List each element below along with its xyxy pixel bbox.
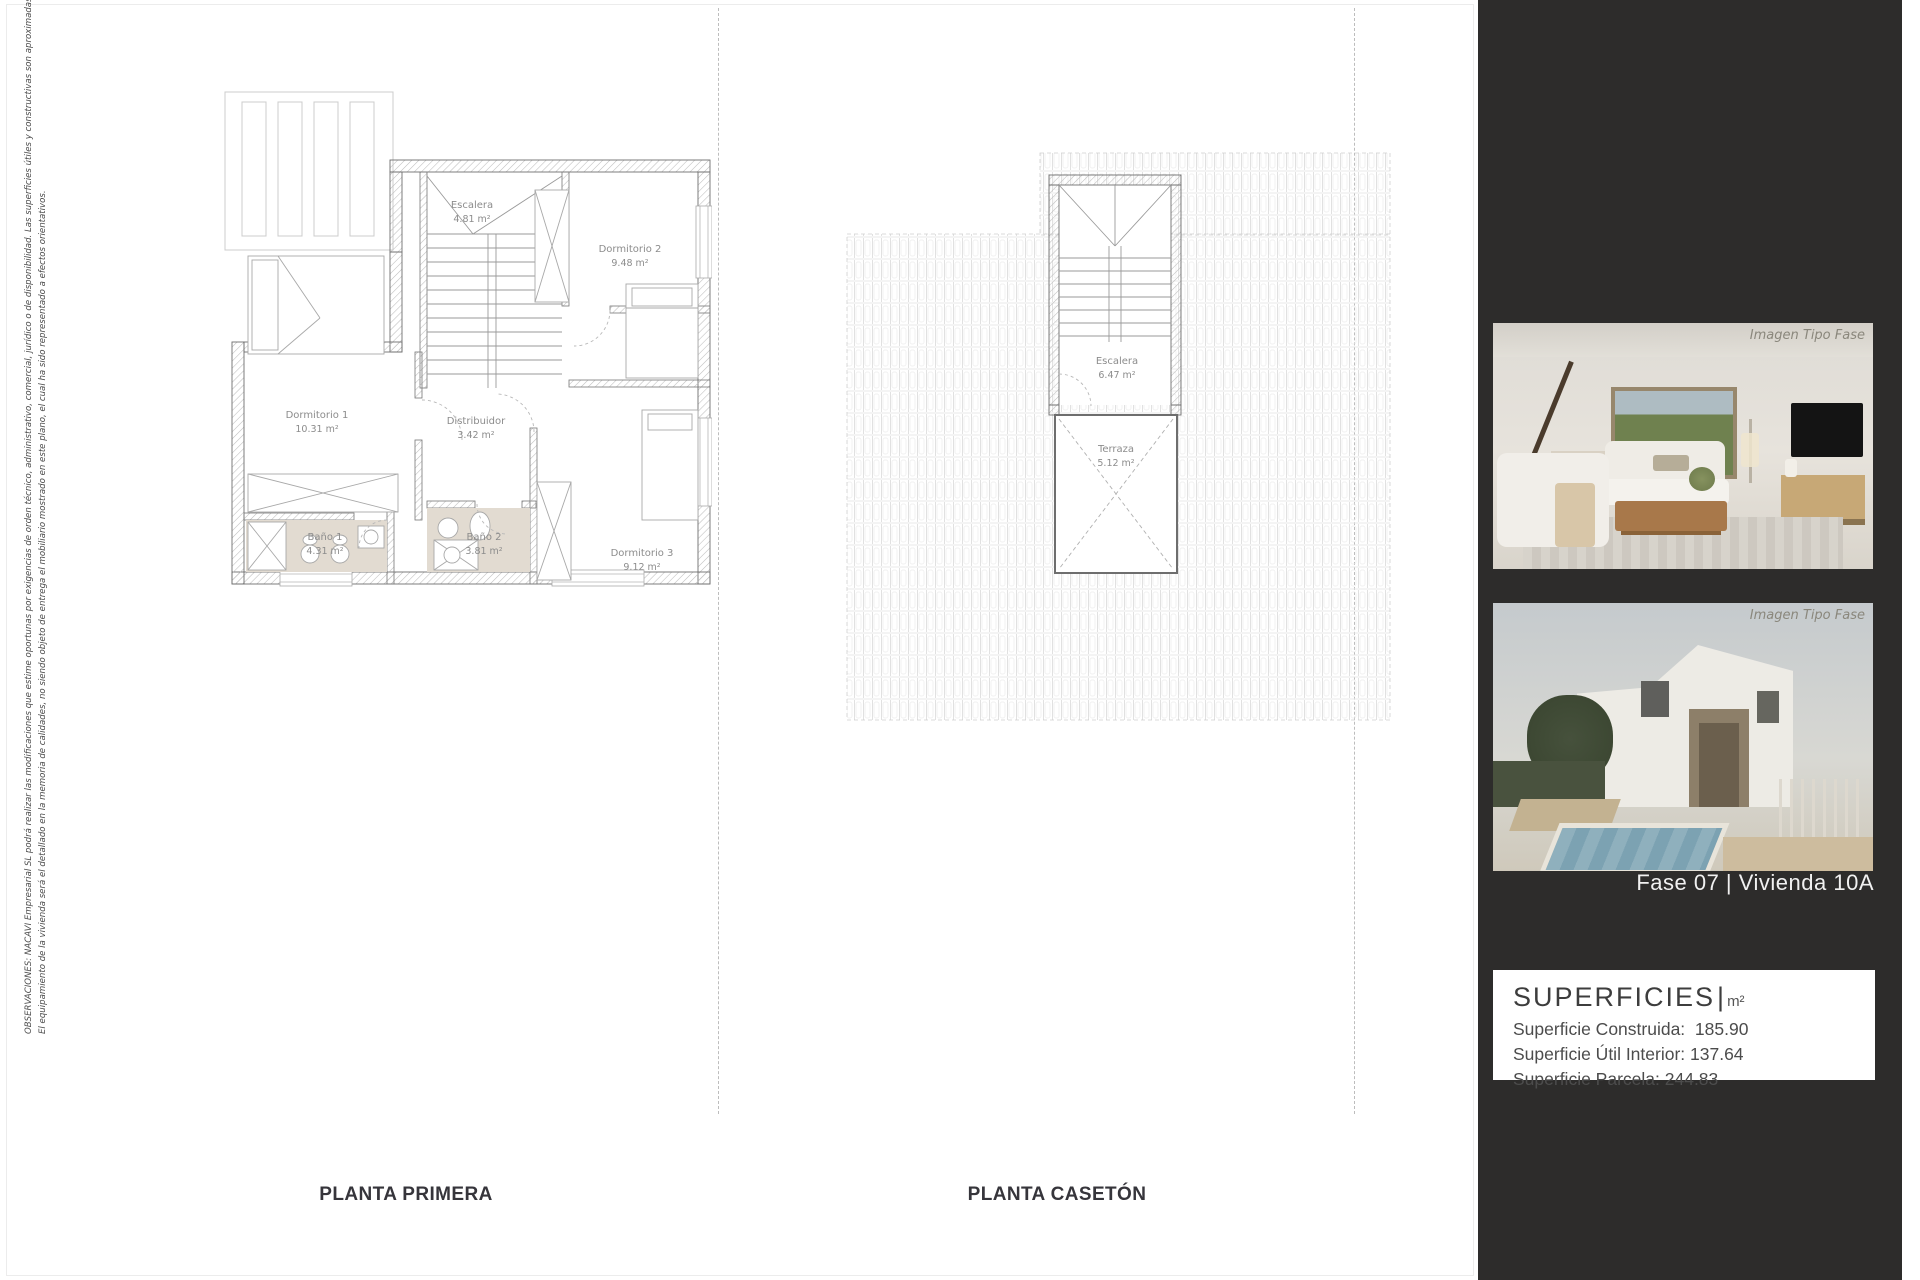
throw-blanket xyxy=(1555,483,1595,547)
room-label: Terraza xyxy=(1097,444,1134,455)
room-label: Dormitorio 2 xyxy=(599,244,662,255)
photo-caption: Imagen Tipo Fase xyxy=(1750,328,1865,343)
disclaimer-line-1: OBSERVACIONES: NACAVI Empresarial SL pod… xyxy=(22,24,36,1034)
room-label: Dormitorio 1 xyxy=(286,410,349,421)
plant xyxy=(1689,467,1715,491)
room-area: 9.48 m² xyxy=(611,258,648,269)
floorplan-planta-caseton: Escalera 6.47 m² Terraza 5.12 m² xyxy=(845,150,1395,725)
lamp-shade xyxy=(1741,433,1759,467)
room-area: 4.81 m² xyxy=(453,214,490,225)
room-label: Escalera xyxy=(451,200,493,211)
room-area: 9.12 m² xyxy=(623,562,660,573)
superficies-title-text: SUPERFICIES xyxy=(1513,982,1715,1012)
room-area: 3.42 m² xyxy=(457,430,494,441)
photo-caption: Imagen Tipo Fase xyxy=(1750,608,1865,623)
superficies-box: SUPERFICIES|m² Superficie Construida: 18… xyxy=(1493,970,1875,1080)
disclaimer-text: OBSERVACIONES: NACAVI Empresarial SL pod… xyxy=(22,24,50,1034)
superficies-unit: m² xyxy=(1727,993,1745,1010)
plan-title-caseton: PLANTA CASETÓN xyxy=(897,1184,1217,1206)
house-window xyxy=(1757,691,1779,723)
unit-title: Fase 07 | Vivienda 10A xyxy=(1478,870,1874,896)
superficie-util-interior: Superficie Útil Interior: 137.64 xyxy=(1513,1042,1875,1067)
house-window xyxy=(1641,681,1669,717)
plan-sheet: OBSERVACIONES: NACAVI Empresarial SL pod… xyxy=(0,0,1920,1280)
room-label: Distribuidor xyxy=(447,416,506,427)
superficies-separator: | xyxy=(1717,982,1726,1012)
superficie-parcela: Superficie Parcela: 244.83 xyxy=(1513,1067,1875,1092)
room-area: 3.81 m² xyxy=(465,546,502,557)
photo-living-room: Imagen Tipo Fase xyxy=(1493,323,1873,569)
room-label: Baño 2 xyxy=(467,532,502,543)
disclaimer-line-2: El equipamiento de la vivienda será el d… xyxy=(36,24,50,1034)
table-lamp xyxy=(1785,459,1797,477)
room-label: Escalera xyxy=(1096,356,1138,367)
cushion xyxy=(1653,455,1689,471)
room-area: 10.31 m² xyxy=(295,424,338,435)
superficies-rows: Superficie Construida: 185.90 Superficie… xyxy=(1513,1017,1875,1092)
room-area: 4.31 m² xyxy=(306,546,343,557)
room-label: Dormitorio 3 xyxy=(611,548,674,559)
superficie-construida: Superficie Construida: 185.90 xyxy=(1513,1017,1875,1042)
room-area: 5.12 m² xyxy=(1097,458,1134,469)
porch-shadow xyxy=(1699,723,1739,807)
superficies-title: SUPERFICIES|m² xyxy=(1513,982,1875,1013)
room-label: Baño 1 xyxy=(308,532,343,543)
railing xyxy=(1779,779,1859,839)
plan-title-primera: PLANTA PRIMERA xyxy=(246,1184,566,1206)
coffee-table xyxy=(1615,501,1727,531)
floorplan-planta-primera: Escalera 4.81 m² Dormitorio 2 9.48 m² Do… xyxy=(222,88,712,623)
photo-house-exterior: Imagen Tipo Fase xyxy=(1493,603,1873,871)
dashed-separator-left xyxy=(718,8,719,1114)
pergola-icon xyxy=(225,92,393,250)
ground xyxy=(1723,837,1873,871)
pool xyxy=(1538,823,1729,871)
terraza xyxy=(1055,415,1177,573)
tv xyxy=(1791,403,1863,457)
room-area: 6.47 m² xyxy=(1098,370,1135,381)
